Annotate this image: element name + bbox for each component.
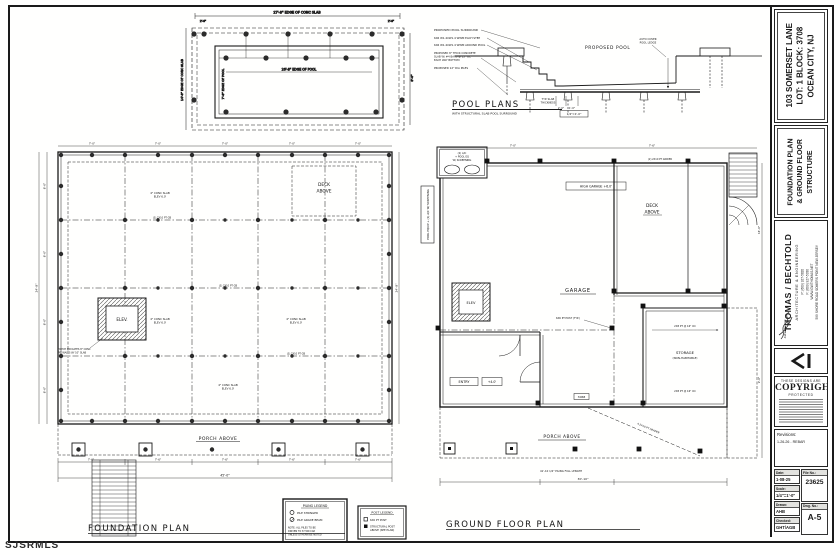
- label-typ-2: THICKNESS: [541, 101, 556, 105]
- scale-value: 1/4"=1'-0": [775, 492, 799, 499]
- svg-text:8'-0": 8'-0": [43, 319, 47, 325]
- label-surround: PROPOSED POOL SURROUND: [434, 28, 479, 32]
- gf-storage-2: (NON-HABITABLE): [673, 356, 698, 360]
- svg-text:(3) 2X10 PT GB: (3) 2X10 PT GB: [153, 217, 172, 220]
- firm-logo-box: [774, 348, 828, 374]
- address-line-1: 103 SOMERSET LANE: [785, 24, 796, 108]
- svg-text:7'-0": 7'-0": [355, 142, 361, 146]
- sheet-title-line-2: & GROUND FLOOR: [796, 139, 806, 204]
- foundation-dims: [39, 146, 399, 482]
- firm-logo-icon: [788, 351, 814, 371]
- svg-text:7'-6": 7'-6": [222, 458, 228, 462]
- pool-dim-top: 27'-8" EDGE OF CONC SLAB: [273, 11, 321, 15]
- label-mesh-pool: 6X6 W1.4XW1.4 WWM AROUND POOL: [434, 43, 486, 47]
- piling-legend-title: PILING LEGEND: [303, 504, 328, 508]
- sheet-title-box: FOUNDATION PLAN & GROUND FLOOR STRUCTURE: [774, 125, 828, 219]
- post-item-2a: STRUCTURAL POST: [370, 525, 395, 529]
- pool-equip-side-label: POOL EQUIP + (2) A/C W/ SCREENING: [426, 189, 430, 240]
- foundation-deck-1: DECK: [318, 182, 330, 188]
- fields-grid: Date: 1-08-25 Scale: 1/4"=1'-0" Drawn: A…: [774, 469, 828, 535]
- svg-text:7'-6": 7'-6": [155, 458, 161, 462]
- svg-text:24'-8": 24'-8": [395, 283, 399, 293]
- post-legend: POST LEGEND 6X6 PT POST STRUCTURAL POST …: [358, 506, 406, 539]
- pool-dim-corner-r: 2'-6": [388, 19, 394, 23]
- signature: Andrew Bechtold: [777, 309, 795, 343]
- gf-header-callout: 4-2X10 PT HEADER: [637, 422, 661, 435]
- svg-text:8'-0": 8'-0": [43, 387, 47, 393]
- slab-labels: 4" CONC SLABELEV 6.0' 4" CONC SLABELEV 6…: [150, 191, 306, 391]
- ground-floor-title: GROUND FLOOR PLAN: [446, 520, 564, 530]
- svg-text:7'-0": 7'-0": [222, 142, 228, 146]
- foundation-plan: ELEV. HATCH INDICATES 8" CONC PIT WALLS …: [35, 142, 400, 537]
- gf-joist-2: 2X8 PT @ 16" OC: [674, 389, 696, 393]
- svg-text:7'-0": 7'-0": [510, 144, 516, 148]
- watermark: SJSRMLS: [5, 540, 59, 551]
- gf-door-tag: 3068: [578, 395, 586, 399]
- gf-post-callout: 6X6 PT POST (TYP.): [556, 316, 580, 320]
- file-no-value: 23625: [802, 476, 827, 487]
- label-slab-2: SLAB W/ #4 BARS @ 12" OC: [434, 55, 471, 59]
- signature-name: Andrew Bechtold: [784, 319, 787, 338]
- pool-dim-left: 14'-8" EDGE OF CONC SLAB: [180, 59, 184, 101]
- revisions-box: Revisions: 1-26-26 - REBAR: [774, 429, 828, 467]
- revisions-label: Revisions:: [777, 432, 825, 437]
- beam-callouts: (3) 2X10 PT GB (3) 2X10 PT GB (3) 2X10 P…: [153, 217, 306, 356]
- sheet-title-line-1: FOUNDATION PLAN: [786, 138, 796, 205]
- svg-text:7'-0": 7'-0": [89, 142, 95, 146]
- date-value: 1-08-25: [775, 476, 799, 483]
- plan-drawing: 27'-8" EDGE OF CONC SLAB 26'-8" EDGE OF …: [0, 0, 840, 555]
- gf-garage: GARAGE: [565, 288, 591, 294]
- post-item-2b: ABOVE (SEE PLAN): [370, 528, 394, 532]
- label-proposed-pool: PROPOSED POOL: [585, 45, 630, 51]
- drawing-sheet: 27'-8" EDGE OF CONC SLAB 26'-8" EDGE OF …: [0, 0, 840, 555]
- checked-field: Checked: GHT/AGB: [774, 517, 800, 532]
- gf-high-garage: HIGH GARAGE +6.0': [580, 185, 612, 189]
- label-slab-3: EACH WAY BOTTOM: [434, 58, 460, 62]
- gf-porch: PORCH ABOVE: [543, 434, 580, 440]
- pool-plans-title: POOL PLANS: [452, 100, 520, 110]
- svg-text:7'-6": 7'-6": [649, 144, 655, 148]
- svg-text:7'-6": 7'-6": [88, 458, 94, 462]
- svg-text:7'-6": 7'-6": [355, 458, 361, 462]
- label-typ-1: TYP. SLAB: [542, 97, 555, 101]
- piling-item-2: PILE GRADE BEAM: [297, 518, 323, 522]
- ac-line-1: (2) A/C: [458, 151, 467, 155]
- svg-text:9'-0": 9'-0": [757, 377, 761, 383]
- pool-dim-corner-l: 2'-6": [200, 19, 206, 23]
- piling-note-3: UNLESS OTHERWISE NOTED: [288, 534, 322, 537]
- foundation-title: FOUNDATION PLAN: [88, 524, 190, 534]
- project-address-box: 103 SOMERSET LANE LOT: 1 BLOCK: 3708 OCE…: [774, 9, 828, 123]
- dwg-no-value: A-5: [802, 510, 827, 523]
- pool-dim-left-inner: 7'-8" EDGE OF POOL: [221, 68, 225, 99]
- label-piles: PROPOSED 12" DIA PILES: [434, 66, 468, 70]
- elev-note-2: PIT WALLS W/ 10" SLAB: [58, 352, 87, 355]
- gf-joist-1: 2X8 PT @ 16" OC: [674, 324, 696, 328]
- copyright-word: COPYRIGHT: [775, 383, 827, 393]
- foundation-deck-2: ABOVE: [316, 189, 331, 195]
- piling-legend: PILING LEGEND PILE STRINGER PILE GRADE B…: [283, 499, 347, 542]
- gf-deck-2: ABOVE: [644, 210, 659, 216]
- svg-text:ELEV 6.0': ELEV 6.0': [154, 321, 167, 325]
- copyright-line-2: PROTECTED: [775, 393, 827, 397]
- pool-plans-scale: 1/4"=1'-0": [567, 112, 582, 116]
- foundation-porch-label: PORCH ABOVE: [199, 436, 238, 442]
- svg-text:(3) 2X10 PT GB: (3) 2X10 PT GB: [287, 353, 306, 356]
- svg-text:ELEV 6.0': ELEV 6.0': [290, 321, 303, 325]
- firm-box: THOMAS / BECHTOLD ARCHITECTURE & ENGINEE…: [774, 220, 828, 346]
- checked-value: GHT/AGB: [775, 524, 799, 531]
- scale-field: Scale: 1/4"=1'-0": [774, 485, 800, 500]
- address-line-2: LOT: 1 BLOCK: 3708: [796, 27, 807, 105]
- drawn-value: AHB: [775, 508, 799, 515]
- pool-section: PROPOSED POOL SURROUND 6X6 W1.4XW1.4 WWM…: [434, 28, 762, 117]
- pool-plan: 27'-8" EDGE OF CONC SLAB 26'-8" EDGE OF …: [180, 11, 414, 131]
- gf-beam-top: (2) 2X10 PT GIRDER: [648, 158, 672, 161]
- date-field: Date: 1-08-25: [774, 469, 800, 484]
- post-legend-title: POST LEGEND: [371, 511, 393, 515]
- pool-plans-subtitle: WITH STRUCTURAL SLAB POOL SURROUND: [452, 112, 518, 116]
- ac-line-2: + POOL EQ: [455, 155, 469, 159]
- svg-text:ELEV 6.0': ELEV 6.0': [222, 387, 235, 391]
- svg-text:30'-10": 30'-10": [578, 477, 590, 481]
- svg-text:7'-0": 7'-0": [289, 142, 295, 146]
- ac-line-3: W/ SCREENING: [453, 158, 472, 162]
- svg-text:45'-0": 45'-0": [220, 474, 230, 478]
- svg-text:ELEV 6.0': ELEV 6.0': [154, 195, 167, 199]
- pool-dim-right: 8'-0": [410, 74, 414, 82]
- porch-pile-caps: [72, 443, 369, 456]
- gf-entry: ENTRY: [459, 380, 471, 384]
- firm-address: 599 SHORE ROAD SOMERS POINT NEW JERSEY: [815, 245, 820, 320]
- revision-entry: 1-26-26 - REBAR: [777, 440, 825, 444]
- copyright-fine-print: [779, 399, 823, 423]
- ground-floor-plan: (2) A/C + POOL EQ W/ SCREENING POOL EQUI…: [421, 144, 762, 531]
- svg-text:7'-6": 7'-6": [289, 458, 295, 462]
- svg-text:16'-0": 16'-0": [757, 226, 761, 234]
- dim-b: 1'-0": [569, 106, 575, 110]
- legends: PILING LEGEND PILE STRINGER PILE GRADE B…: [283, 499, 406, 542]
- label-ledge-2: POOL LEDGE: [640, 41, 657, 45]
- svg-text:8'-0": 8'-0": [43, 183, 47, 189]
- title-block: 103 SOMERSET LANE LOT: 1 BLOCK: 3708 OCE…: [770, 7, 830, 537]
- gf-entry-elev: +4.0': [488, 380, 497, 384]
- gf-deck-1: DECK: [646, 203, 658, 209]
- address-line-3: OCEAN CITY, NJ: [806, 34, 817, 97]
- piling-item-1: PILE STRINGER: [297, 511, 318, 515]
- pool-dim-inner: 26'-8" EDGE OF POOL: [282, 68, 317, 72]
- label-mesh-step: 6X6 W1.4XW1.4 WWM EACH STEP: [434, 36, 480, 40]
- gf-dim-text: 7'-0" 7'-6" 16'-0" 9'-0" 30'-10": [510, 144, 761, 482]
- sheet-title-line-3: STRUCTURE: [806, 150, 816, 193]
- svg-text:8'-0": 8'-0": [43, 251, 47, 257]
- gf-piling-note: 41'-10 1/2" PILING FULL LENGTH: [540, 469, 582, 473]
- post-item-1: 6X6 PT POST: [370, 518, 387, 522]
- foundation-dim-text: 7'-0" 7'-0" 7'-0" 7'-0" 7'-0" 7'-6" 7'-6…: [35, 142, 399, 478]
- label-ledge-1: AUTO COVER: [639, 37, 656, 41]
- svg-text:(3) 2X10 PT GB: (3) 2X10 PT GB: [219, 285, 238, 288]
- dwg-no-field: Dwg. No.: A-5: [801, 503, 828, 535]
- file-no-field: File No.: 23625: [801, 469, 828, 501]
- svg-text:7'-0": 7'-0": [155, 142, 161, 146]
- foundation-elev-label: ELEV.: [116, 317, 127, 322]
- gf-elev-label: ELEV: [466, 301, 476, 305]
- svg-text:24'-8": 24'-8": [35, 283, 39, 293]
- label-slab-1: PROPOSED 8" THICK CONCRETE: [434, 51, 476, 55]
- gf-storage-1: STORAGE: [676, 350, 695, 355]
- drawn-field: Drawn: AHB: [774, 501, 800, 516]
- copyright-line-1: THESE DESIGNS ARE: [775, 379, 827, 383]
- copyright-box: THESE DESIGNS ARE COPYRIGHT PROTECTED: [774, 376, 828, 428]
